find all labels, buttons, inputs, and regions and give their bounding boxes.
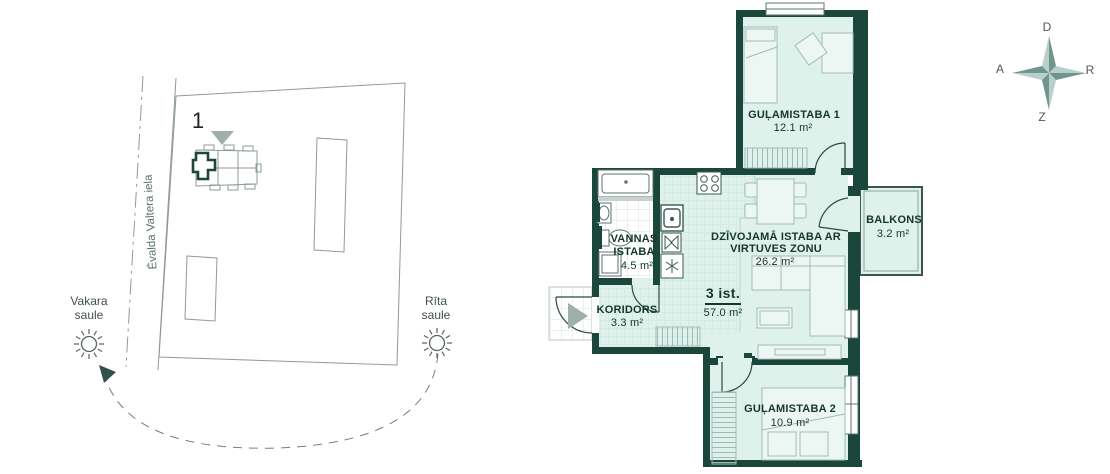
plumbing-shaft (592, 203, 600, 222)
apartment-building-footprint (193, 145, 261, 190)
building-outline (185, 256, 217, 321)
evening-sun-label-line1: Vakara (70, 294, 107, 308)
bathtub (598, 170, 653, 201)
sun-path-arc (106, 354, 438, 448)
plumbing-shaft (592, 226, 602, 249)
wardrobe (712, 392, 736, 464)
room-area-bedroom2: 10.9 m² (771, 417, 810, 429)
compass-rose-icon (1012, 36, 1086, 110)
site-plan (74, 76, 452, 448)
compass-label-west: R (1086, 63, 1095, 77)
building-number: 1 (192, 108, 204, 134)
location-pointer-icon (211, 131, 234, 145)
room-area-bedroom1: 12.1 m² (774, 122, 813, 134)
room-area-balcony: 3.2 m² (877, 228, 909, 240)
room-label-corridor: KORIDORS (597, 304, 658, 316)
floorplan-page: GUĻAMISTABA 1 12.1 m² DZĪVOJAMĀ ISTABA A… (0, 0, 1110, 474)
plan-drawing (0, 0, 1110, 474)
room-label-living-line1: DZĪVOJAMĀ ISTABA AR (711, 231, 841, 243)
room-label-living-line2: VIRTUVES ZONU (730, 243, 822, 255)
compass-label-south: D (1043, 20, 1052, 34)
total-divider (705, 303, 741, 305)
bed (744, 27, 777, 103)
wardrobe (745, 148, 807, 168)
arc-arrowhead-icon (99, 365, 116, 383)
fridge (661, 254, 683, 278)
kitchen-sink (661, 205, 683, 231)
building-outline (314, 138, 347, 252)
wardrobe (656, 327, 700, 346)
morning-sun-label-line2: saule (422, 308, 451, 322)
room-label-bathroom-line2: ISTABA (613, 246, 654, 258)
room-label-bedroom1: GUĻAMISTABA 1 (748, 109, 840, 121)
evening-sun-icon (74, 329, 104, 359)
compass-label-east: A (996, 62, 1004, 76)
morning-sun-label-line1: Rīta (425, 294, 447, 308)
stove (697, 172, 721, 194)
room-label-balcony: BALKONS (866, 214, 922, 226)
total-area: 57.0 m² (704, 307, 743, 319)
compass-label-north: Z (1038, 110, 1045, 124)
room-area-living: 26.2 m² (756, 256, 795, 268)
room-area-bathroom: 4.5 m² (621, 260, 653, 272)
evening-sun-label-line2: saule (75, 308, 104, 322)
room-label-bathroom-line1: VANNAS (611, 233, 658, 245)
dishwasher (662, 233, 681, 252)
total-rooms-label: 3 ist. (706, 285, 740, 301)
room-label-bedroom2: GUĻAMISTABA 2 (744, 403, 836, 415)
coffee-table (757, 308, 792, 328)
tv-stand (758, 345, 841, 359)
room-area-corridor: 3.3 m² (611, 317, 643, 329)
morning-sun-icon (422, 328, 452, 358)
